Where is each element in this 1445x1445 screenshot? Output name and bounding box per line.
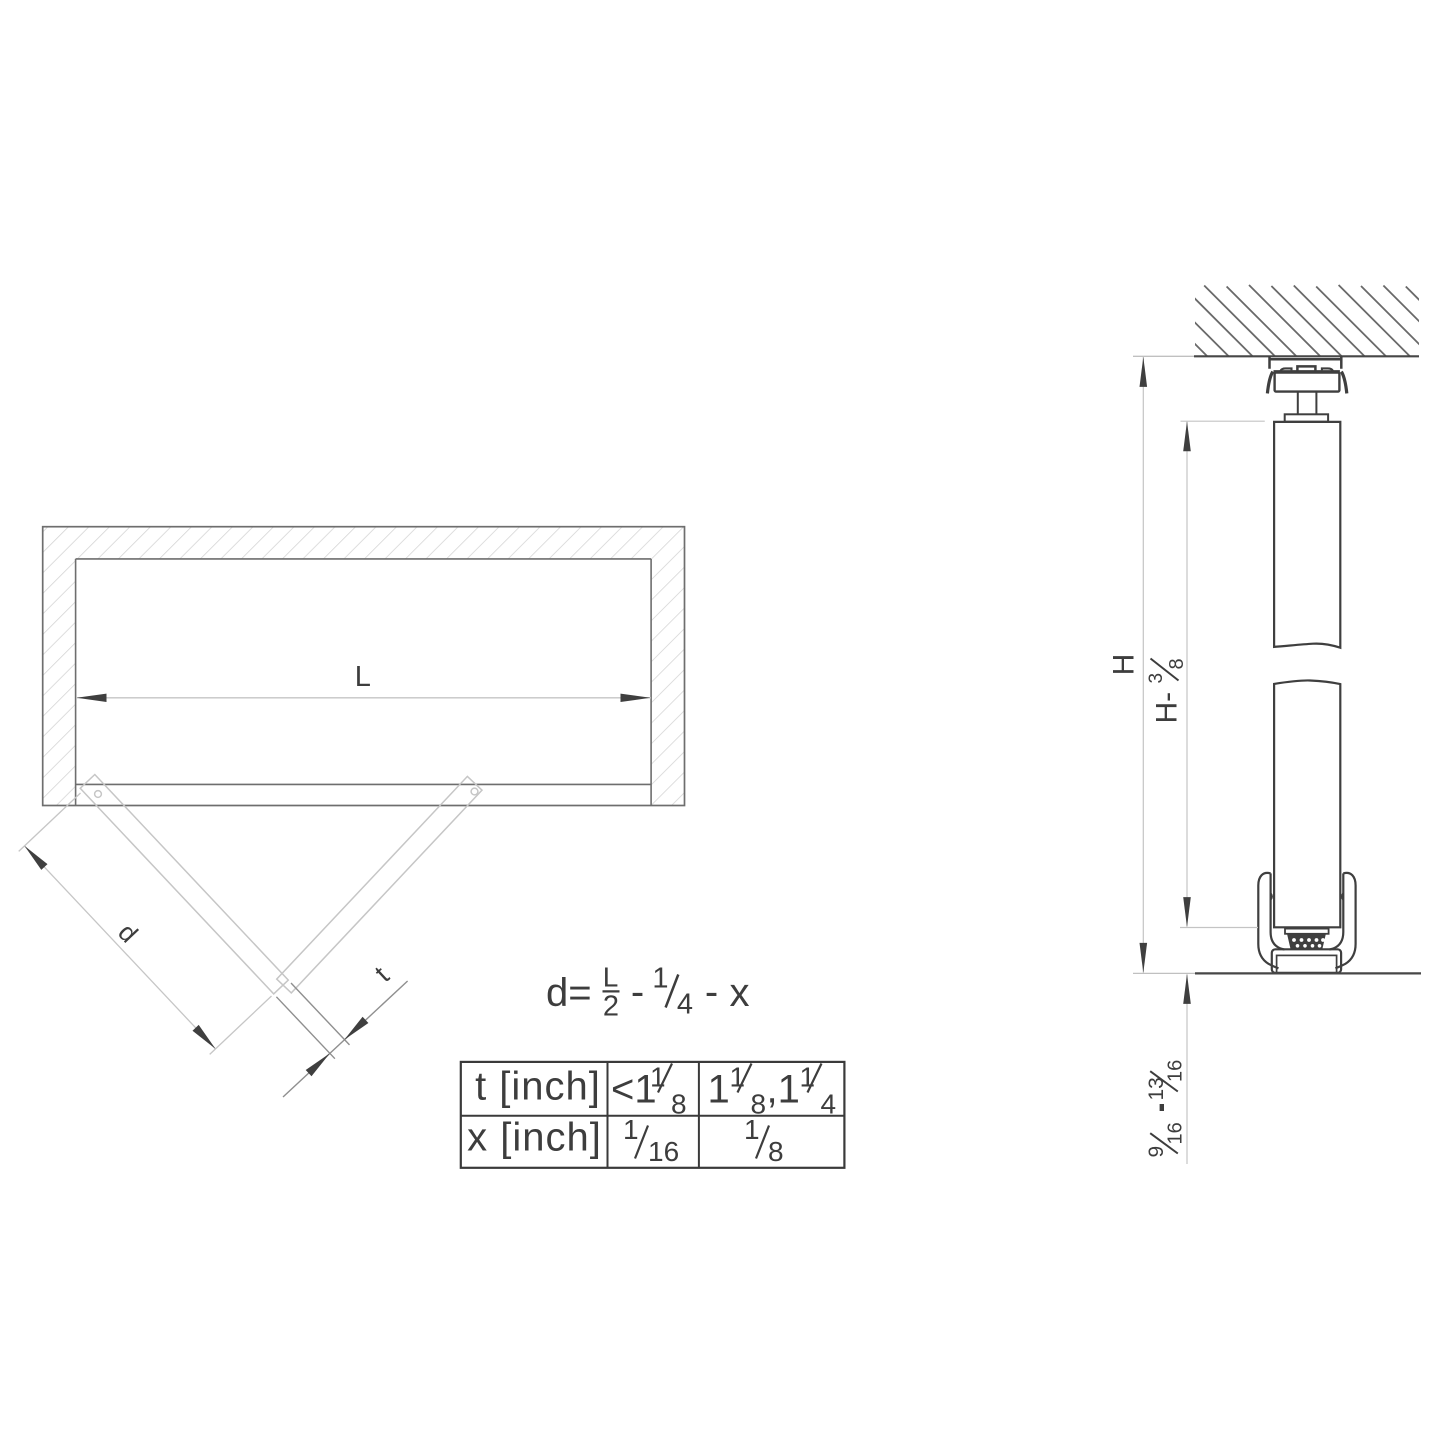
svg-text:-: - <box>705 970 718 1014</box>
svg-text:x: x <box>730 971 750 1015</box>
svg-text:1: 1 <box>652 963 668 995</box>
svg-text:4: 4 <box>821 1089 837 1120</box>
svg-text:1: 1 <box>708 1068 730 1112</box>
svg-text:H: H <box>1108 654 1141 676</box>
svg-text:L: L <box>603 962 619 993</box>
svg-text:8: 8 <box>768 1136 784 1167</box>
svg-text:t: t <box>369 960 395 987</box>
svg-text:1: 1 <box>744 1114 760 1145</box>
svg-text:x [inch]: x [inch] <box>467 1116 602 1160</box>
svg-text:d=: d= <box>546 971 592 1015</box>
svg-text:1: 1 <box>800 1062 816 1093</box>
svg-text:16: 16 <box>648 1136 679 1167</box>
svg-text:t [inch]: t [inch] <box>475 1065 601 1109</box>
svg-text:9: 9 <box>1145 1146 1168 1158</box>
svg-text:1: 1 <box>650 1062 666 1093</box>
svg-text:8: 8 <box>671 1089 687 1120</box>
svg-text:16: 16 <box>1165 1060 1187 1082</box>
svg-text:1: 1 <box>623 1114 639 1145</box>
svg-text:2: 2 <box>603 991 619 1023</box>
svg-text:1: 1 <box>730 1062 746 1093</box>
svg-text:8: 8 <box>1166 658 1188 669</box>
svg-text:-: - <box>631 970 644 1014</box>
svg-text:,1: ,1 <box>767 1068 800 1112</box>
svg-text:4: 4 <box>677 989 693 1021</box>
svg-text:3: 3 <box>1146 673 1167 684</box>
svg-text:H-: H- <box>1151 692 1184 724</box>
svg-text:L: L <box>355 661 371 693</box>
svg-text:16: 16 <box>1165 1122 1187 1144</box>
